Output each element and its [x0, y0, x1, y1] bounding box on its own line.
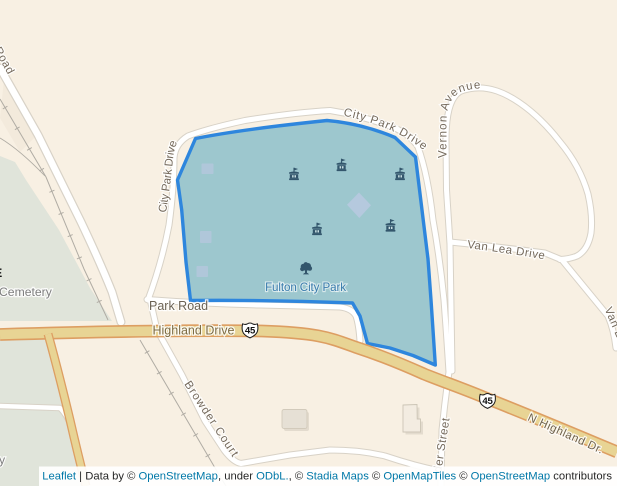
svg-text:Cemetery: Cemetery	[0, 285, 53, 299]
svg-text:E: E	[0, 268, 3, 280]
svg-text:Highland Drive: Highland Drive	[153, 324, 235, 338]
svg-text:Fulton City Park: Fulton City Park	[265, 281, 346, 294]
svg-text:Park Road: Park Road	[149, 299, 208, 313]
svg-text:Leaflet | Data by © OpenStreet: Leaflet | Data by © OpenStreetMap, under…	[42, 471, 612, 483]
